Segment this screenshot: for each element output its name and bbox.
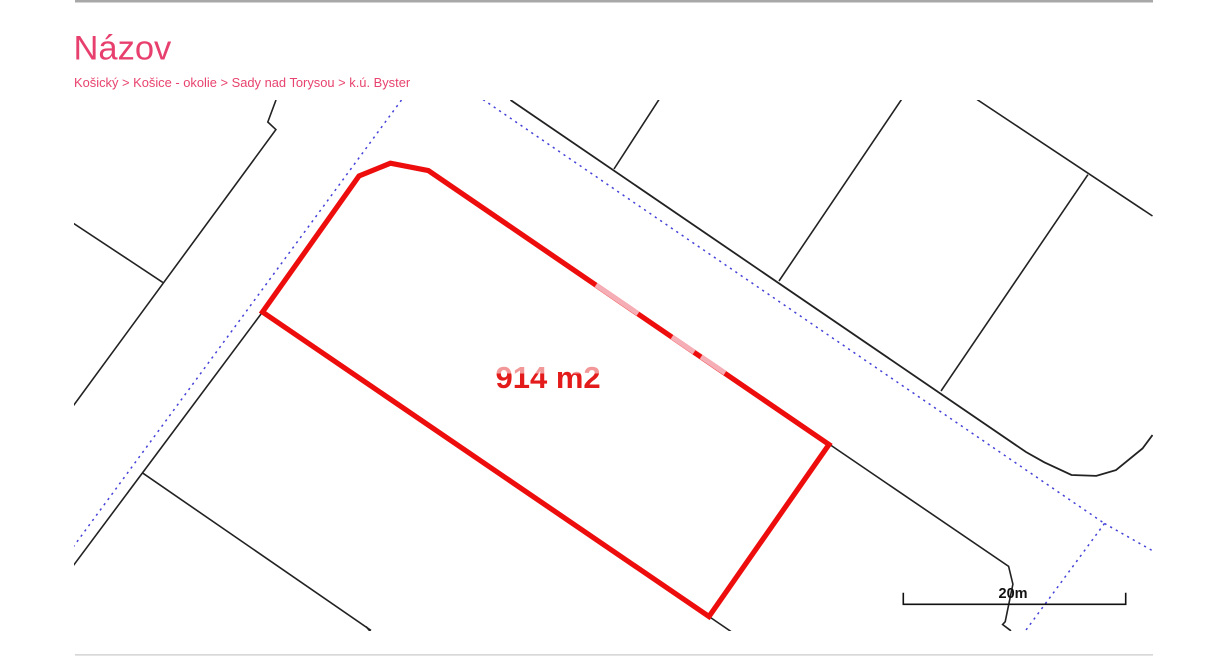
svg-text:Košický > Košice - okolie > Sa: Košický > Košice - okolie > Sady nad Tor… [74, 75, 411, 90]
svg-text:20m: 20m [999, 586, 1028, 602]
svg-text:Názov: Názov [74, 30, 173, 68]
